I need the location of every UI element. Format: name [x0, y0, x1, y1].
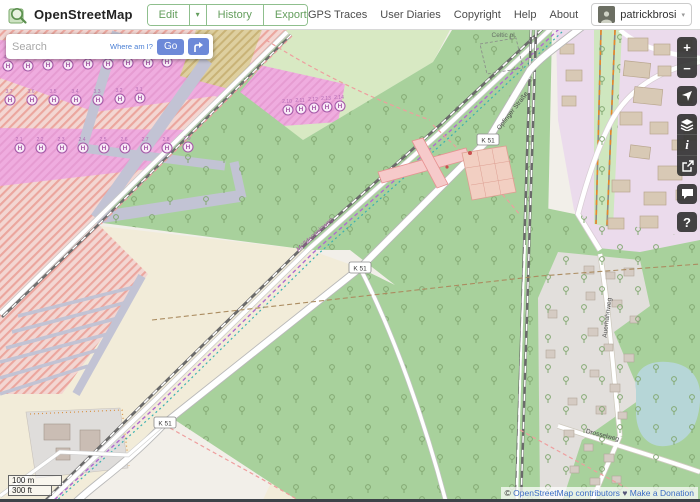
svg-text:2.11: 2.11	[295, 98, 305, 104]
header-nav: GPS Traces User Diaries Copyright Help A…	[308, 3, 692, 26]
road-ref-badge: K 51	[154, 417, 176, 428]
svg-text:H: H	[81, 145, 86, 152]
search-panel: Where am I? Go	[6, 34, 213, 59]
note-bubble-icon	[681, 188, 694, 200]
nav-user-diaries[interactable]: User Diaries	[380, 9, 441, 21]
nav-gps-traces[interactable]: GPS Traces	[308, 9, 367, 21]
osm-contributors-link[interactable]: OpenStreetMap contributors	[513, 488, 620, 498]
svg-text:H: H	[46, 62, 51, 69]
scale-metric: 100 m	[8, 475, 62, 486]
donate-link[interactable]: Make a Donation	[630, 488, 694, 498]
minus-icon: −	[683, 61, 691, 76]
history-button[interactable]: History	[207, 5, 264, 25]
username: patrickbrosi	[620, 9, 676, 21]
zoom-out-button[interactable]: −	[677, 57, 697, 78]
svg-text:2.14: 2.14	[334, 95, 344, 101]
svg-text:H: H	[165, 145, 170, 152]
edit-dropdown-caret[interactable]: ▾	[190, 5, 207, 25]
add-note-button[interactable]	[677, 184, 697, 204]
export-button[interactable]: Export	[264, 5, 308, 25]
svg-text:H: H	[146, 60, 151, 67]
svg-text:H: H	[102, 145, 107, 152]
svg-text:H: H	[106, 61, 111, 68]
nav-about[interactable]: About	[549, 9, 578, 21]
road-ref-badge: K 51	[349, 262, 371, 273]
svg-text:H: H	[312, 105, 317, 112]
svg-text:2.6: 2.6	[121, 137, 128, 143]
svg-text:H: H	[118, 96, 123, 103]
directions-arrow-icon	[193, 41, 205, 53]
svg-text:H: H	[186, 144, 191, 151]
copyright-symbol: ©	[505, 488, 511, 498]
directions-button[interactable]	[188, 38, 209, 55]
nav-copyright[interactable]: Copyright	[454, 9, 501, 21]
svg-text:2.7: 2.7	[142, 137, 149, 143]
user-dropdown-caret: ▾	[681, 11, 685, 19]
svg-text:K 51: K 51	[158, 421, 172, 428]
map-canvas[interactable]: H4.9 H4.8 H4.7 H4.6 H4.5 H4.4 H4.3 H4.2 …	[0, 0, 700, 502]
svg-text:H: H	[66, 62, 71, 69]
where-am-i-link[interactable]: Where am I?	[110, 42, 153, 51]
help-group: ?	[677, 212, 697, 232]
poi-dot	[468, 151, 472, 155]
road-ref-badge: K 51	[477, 134, 499, 145]
svg-text:3.1: 3.1	[136, 87, 143, 93]
locate-button[interactable]	[677, 86, 697, 106]
svg-text:2.12: 2.12	[308, 97, 318, 103]
svg-text:H: H	[299, 106, 304, 113]
map-key-button[interactable]: i	[677, 134, 697, 155]
layers-button[interactable]	[677, 114, 697, 134]
search-go-button[interactable]: Go	[157, 39, 184, 55]
question-icon: ?	[683, 215, 691, 230]
plus-icon: +	[683, 40, 691, 55]
svg-text:2.9: 2.9	[184, 136, 191, 142]
osm-home-link[interactable]: OpenStreetMap	[8, 5, 133, 25]
svg-text:H: H	[96, 97, 101, 104]
scale-bar: 100 m 300 ft	[8, 475, 62, 496]
brand-title: OpenStreetMap	[34, 7, 133, 22]
nav-help[interactable]: Help	[514, 9, 537, 21]
svg-text:H: H	[286, 107, 291, 114]
map-base-layer	[0, 0, 700, 502]
svg-text:H: H	[338, 103, 343, 110]
svg-text:2.2: 2.2	[37, 137, 44, 143]
info-icon: i	[685, 137, 689, 153]
layers-group: i	[677, 114, 697, 176]
svg-text:3.4: 3.4	[72, 89, 79, 95]
svg-text:H: H	[8, 97, 13, 104]
svg-text:H: H	[60, 145, 65, 152]
map-controls: + − i	[677, 37, 697, 232]
zoom-in-button[interactable]: +	[677, 37, 697, 57]
heart-icon: ♥	[622, 488, 627, 498]
svg-text:3.5: 3.5	[50, 89, 57, 95]
svg-text:K 51: K 51	[353, 266, 367, 273]
top-navbar: OpenStreetMap Edit ▾ History Export GPS …	[0, 0, 700, 30]
area-name-label: Celtic pl.	[492, 32, 517, 39]
layers-icon	[680, 118, 694, 131]
osm-logo-icon	[8, 5, 28, 25]
helipad-row-3: H2.1 H2.2 H2.3 H2.4 H2.5 H2.6 H2.7 H2.8 …	[15, 136, 193, 153]
zoom-control-group: + −	[677, 37, 697, 78]
edit-button-group: Edit ▾ History Export	[147, 4, 308, 26]
svg-text:2.5: 2.5	[100, 137, 107, 143]
svg-text:2.13: 2.13	[321, 96, 331, 102]
svg-text:K 51: K 51	[481, 138, 495, 145]
edit-button[interactable]: Edit	[148, 5, 190, 25]
svg-text:3.3: 3.3	[94, 89, 101, 95]
svg-text:H: H	[138, 95, 143, 102]
svg-text:2.3: 2.3	[58, 137, 65, 143]
svg-text:H: H	[165, 59, 170, 66]
svg-text:H: H	[26, 63, 31, 70]
svg-text:H: H	[123, 145, 128, 152]
svg-text:H: H	[126, 60, 131, 67]
svg-text:H: H	[86, 61, 91, 68]
svg-text:2.8: 2.8	[163, 137, 170, 143]
attribution-bar: © OpenStreetMap contributors ♥ Make a Do…	[501, 487, 698, 499]
svg-text:H: H	[6, 63, 11, 70]
svg-text:2.1: 2.1	[16, 137, 23, 143]
svg-text:3.7: 3.7	[6, 89, 13, 95]
user-avatar	[598, 6, 615, 23]
svg-text:2.10: 2.10	[282, 99, 292, 105]
svg-text:H: H	[325, 104, 330, 111]
share-button[interactable]	[677, 155, 697, 176]
query-features-button[interactable]: ?	[677, 212, 697, 232]
svg-text:3.6: 3.6	[28, 89, 35, 95]
svg-text:H: H	[18, 145, 23, 152]
poi-dot	[445, 165, 448, 168]
svg-text:H: H	[30, 97, 35, 104]
scale-imperial: 300 ft	[8, 486, 52, 496]
svg-text:2.4: 2.4	[79, 137, 86, 143]
svg-text:H: H	[74, 97, 79, 104]
svg-text:H: H	[52, 97, 57, 104]
locate-arrow-icon	[681, 90, 693, 102]
svg-text:H: H	[144, 145, 149, 152]
note-group	[677, 184, 697, 204]
svg-text:3.2: 3.2	[116, 88, 123, 94]
svg-text:H: H	[39, 145, 44, 152]
share-icon	[681, 160, 694, 173]
locate-group	[677, 86, 697, 106]
search-input[interactable]	[10, 40, 106, 54]
user-menu[interactable]: patrickbrosi ▾	[591, 3, 692, 26]
